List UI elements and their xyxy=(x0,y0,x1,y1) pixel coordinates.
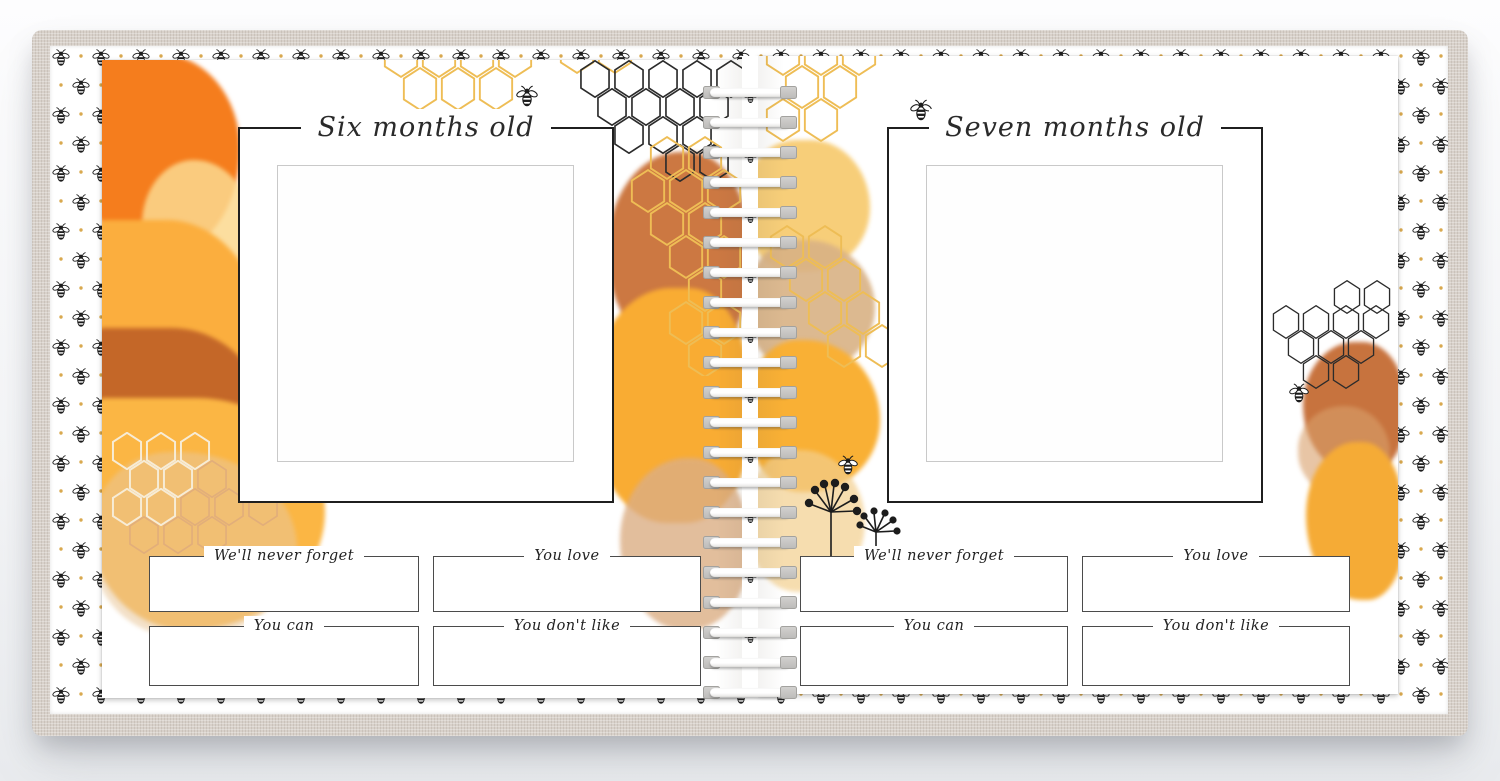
field-label: You love xyxy=(524,546,609,567)
field-box-you-can: You can xyxy=(149,626,419,686)
field-box-you-love: You love xyxy=(1082,556,1350,612)
spiral-binding xyxy=(698,85,802,707)
field-box-dont-like: You don't like xyxy=(1082,626,1350,686)
spiral-rung xyxy=(698,145,802,160)
spiral-rung xyxy=(698,625,802,640)
field-box-never-forget: We'll never forget xyxy=(800,556,1068,612)
field-label: You don't like xyxy=(504,616,630,637)
photo-placeholder-left xyxy=(277,165,574,462)
spiral-rung xyxy=(698,475,802,490)
field-box-dont-like: You don't like xyxy=(433,626,701,686)
field-label: You can xyxy=(894,616,975,637)
field-label: You love xyxy=(1173,546,1258,567)
photo-frame-left: Six months old xyxy=(238,127,614,503)
spiral-rung xyxy=(698,325,802,340)
spiral-rung xyxy=(698,205,802,220)
spiral-rung xyxy=(698,85,802,100)
spiral-rung xyxy=(698,355,802,370)
spiral-rung xyxy=(698,445,802,460)
page-six-months: Six months old We'll never forget You lo… xyxy=(102,60,742,698)
spiral-rung xyxy=(698,115,802,130)
spiral-rung xyxy=(698,535,802,550)
field-label: You don't like xyxy=(1153,616,1279,637)
spiral-rung xyxy=(698,175,802,190)
photo-frame-right: Seven months old xyxy=(887,127,1263,503)
page-seven-months: Seven months old We'll never forget You … xyxy=(758,56,1398,694)
field-label: We'll never forget xyxy=(204,546,364,567)
bee-icon xyxy=(516,84,538,108)
photo-placeholder-right xyxy=(926,165,1223,462)
spiral-rung xyxy=(698,295,802,310)
spiral-rung xyxy=(698,595,802,610)
field-label: We'll never forget xyxy=(854,546,1014,567)
spiral-rung xyxy=(698,415,802,430)
spiral-rung xyxy=(698,235,802,250)
bee-icon xyxy=(910,98,932,122)
spiral-rung xyxy=(698,385,802,400)
honeycomb-black-right-icon xyxy=(1270,280,1395,392)
field-box-you-love: You love xyxy=(433,556,701,612)
page-title-right: Seven months old xyxy=(889,109,1261,147)
spiral-rung xyxy=(698,685,802,700)
field-box-you-can: You can xyxy=(800,626,1068,686)
bee-icon xyxy=(1289,382,1309,404)
product-photo-baby-memory-book: Six months old We'll never forget You lo… xyxy=(0,0,1500,781)
spiral-rung xyxy=(698,655,802,670)
spiral-rung xyxy=(698,565,802,580)
spiral-rung xyxy=(698,265,802,280)
field-label: You can xyxy=(244,616,325,637)
spiral-rung xyxy=(698,505,802,520)
field-box-never-forget: We'll never forget xyxy=(149,556,419,612)
